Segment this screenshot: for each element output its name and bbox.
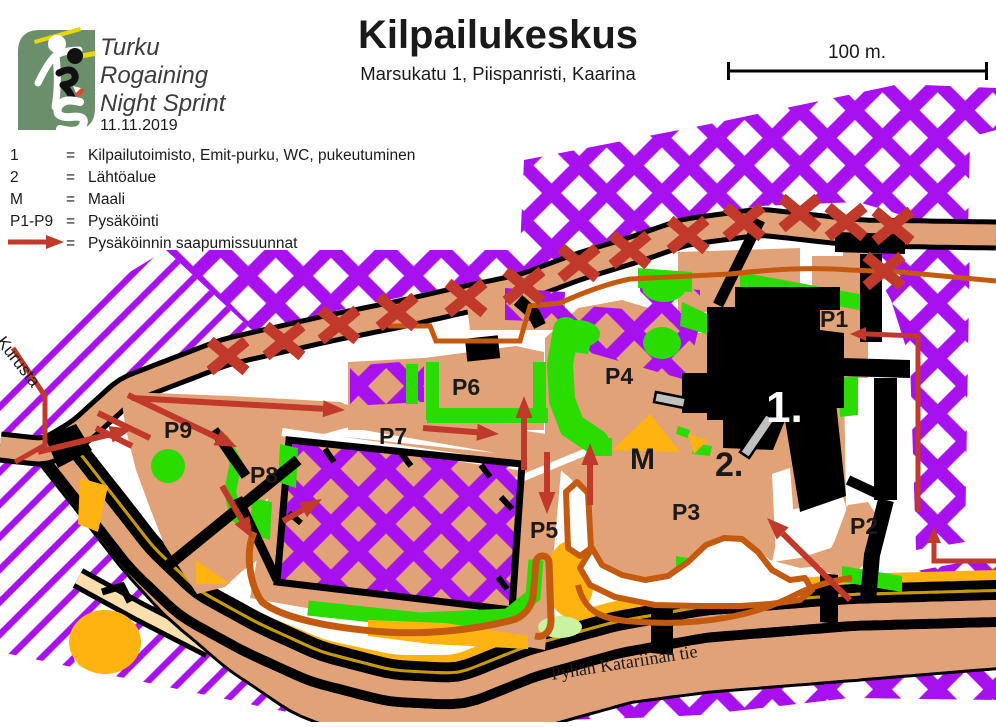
svg-text:P1: P1 (820, 306, 848, 332)
svg-text:P6: P6 (452, 374, 480, 400)
svg-text:Lähtöalue: Lähtöalue (88, 169, 156, 186)
svg-text:=: = (66, 147, 75, 164)
svg-text:P5: P5 (530, 517, 558, 543)
svg-text:Rogaining: Rogaining (100, 62, 209, 89)
svg-text:P3: P3 (672, 499, 700, 525)
svg-text:P4: P4 (605, 363, 633, 389)
svg-text:100 m.: 100 m. (828, 42, 886, 63)
svg-text:M: M (630, 443, 655, 476)
svg-text:=: = (66, 191, 75, 208)
svg-text:2: 2 (10, 169, 19, 186)
svg-text:Maali: Maali (88, 191, 125, 208)
svg-text:2.: 2. (715, 446, 743, 484)
svg-text:P7: P7 (379, 423, 407, 449)
svg-text:Kilpailutoimisto, Emit-purku,: Kilpailutoimisto, Emit-purku, WC, pukeut… (88, 147, 415, 164)
svg-text:=: = (66, 213, 75, 230)
svg-text:1: 1 (10, 147, 19, 164)
svg-text:Pysäköinnin saapumissuunnat: Pysäköinnin saapumissuunnat (88, 235, 298, 252)
svg-text:Marsukatu 1, Piispanristi, Kaa: Marsukatu 1, Piispanristi, Kaarina (360, 63, 636, 84)
svg-text:=: = (66, 235, 75, 252)
svg-text:Night Sprint: Night Sprint (100, 90, 227, 117)
svg-text:=: = (66, 169, 75, 186)
svg-text:1.: 1. (766, 383, 803, 432)
svg-text:Pysäköinti: Pysäköinti (88, 213, 159, 230)
svg-text:P1-P9: P1-P9 (10, 213, 53, 230)
svg-text:P9: P9 (164, 417, 192, 443)
svg-text:Kilpailukeskus: Kilpailukeskus (358, 13, 638, 57)
svg-text:11.11.2019: 11.11.2019 (100, 117, 178, 134)
svg-text:P8: P8 (250, 462, 278, 488)
svg-text:P2: P2 (850, 513, 878, 539)
svg-text:Turku: Turku (100, 34, 160, 61)
svg-text:M: M (10, 191, 23, 208)
